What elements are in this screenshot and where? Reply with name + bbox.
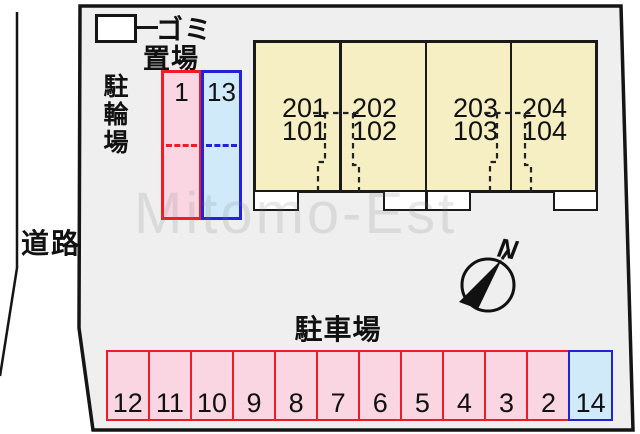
entrance-porch [553, 190, 598, 211]
building-unit: 204 104 [510, 43, 595, 190]
parking-space-number: 2 [528, 388, 569, 419]
garbage-bin-icon [95, 14, 137, 43]
unit-number-lower: 104 [503, 120, 586, 143]
bicycle-space-number: 1 [164, 77, 199, 108]
building-unit: 201 101 [256, 43, 339, 190]
road-label: 道路 [21, 222, 81, 262]
parking-space-number: 3 [486, 388, 527, 419]
parking-space-number: 14 [570, 388, 611, 419]
parking-space: 4 [442, 350, 487, 421]
parking-space-number: 7 [318, 388, 359, 419]
parking-space-number: 11 [150, 388, 191, 419]
bicycle-space-number: 13 [204, 77, 239, 108]
site-plan: 道路 ゴミ 置場 駐輪場 1 13 201 101 [0, 0, 640, 434]
bicycle-parking-label: 駐輪場 [96, 73, 132, 157]
parking-space: 9 [232, 350, 277, 421]
compass-needle [459, 259, 502, 309]
parking-space-number: 5 [402, 388, 443, 419]
parking-space-number: 4 [444, 388, 485, 419]
building-unit: 202 102 [339, 43, 425, 190]
parking-space-number: 12 [108, 388, 149, 419]
compass-north-label: N [495, 233, 520, 266]
parking-space: 7 [316, 350, 361, 421]
parking-space: 3 [484, 350, 529, 421]
parking-space-number: 8 [276, 388, 317, 419]
unit-numbers: 204 104 [503, 97, 586, 143]
parking-space-number: 6 [360, 388, 401, 419]
parking-spaces: 12 11 10 9 8 7 6 [108, 350, 613, 421]
bicycle-space-divider-dash [166, 144, 197, 147]
parking-space: 6 [358, 350, 403, 421]
unit-number-lower: 102 [333, 120, 416, 143]
apartment-building: 201 101 202 102 203 103 204 [253, 40, 598, 193]
parking-space: 12 [106, 350, 151, 421]
compass-icon: N [445, 228, 537, 324]
parking-space: 8 [274, 350, 319, 421]
parking-space: 14 [568, 350, 613, 421]
parking-space: 11 [148, 350, 193, 421]
watermark: Mitomo-Est [134, 180, 457, 247]
garbage-connector-line [135, 26, 158, 29]
parking-space-number: 9 [234, 388, 275, 419]
bicycle-space-divider-dash [206, 144, 237, 147]
parking-space-number: 10 [192, 388, 233, 419]
building-unit: 203 103 [425, 43, 510, 190]
parking-lot-label: 駐車場 [281, 308, 395, 348]
parking-space: 10 [190, 350, 235, 421]
parking-space: 5 [400, 350, 445, 421]
unit-numbers: 202 102 [333, 97, 416, 143]
road-edge-line [0, 12, 17, 376]
parking-space: 2 [526, 350, 571, 421]
